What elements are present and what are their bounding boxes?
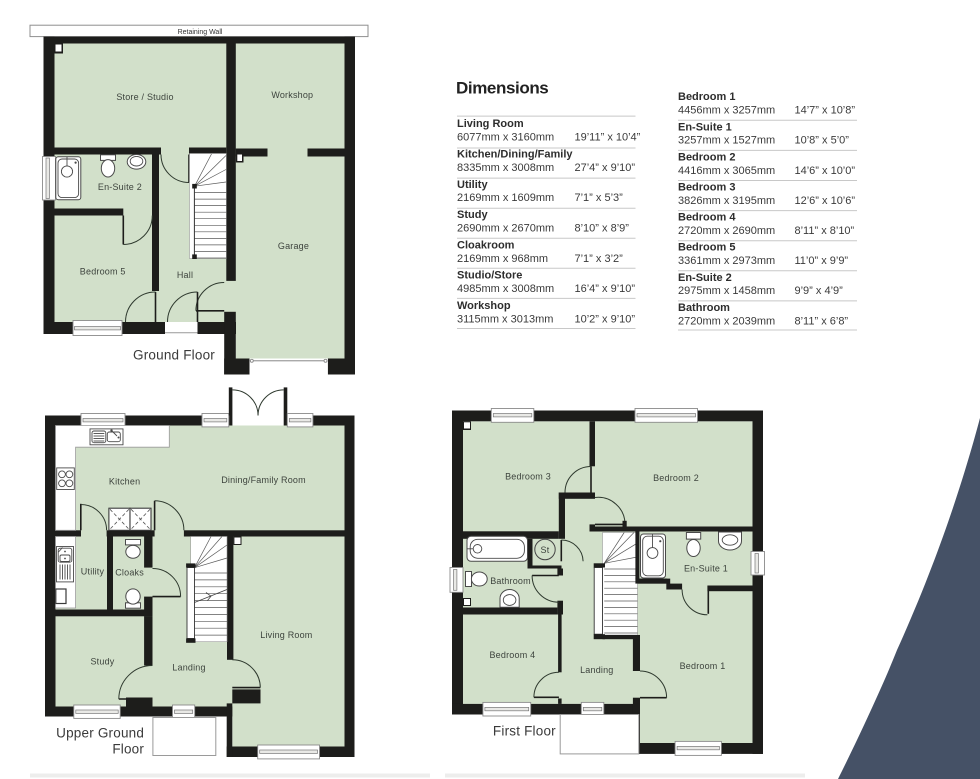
svg-text:4456mm x 3257mm: 4456mm x 3257mm [678, 105, 775, 117]
svg-text:4985mm x 3008mm: 4985mm x 3008mm [457, 283, 554, 295]
svg-text:Bathroom: Bathroom [678, 302, 730, 314]
svg-text:Bedroom 5: Bedroom 5 [678, 242, 735, 254]
svg-text:7’1” x 5’3”: 7’1” x 5’3” [575, 192, 624, 204]
svg-text:Landing: Landing [172, 663, 205, 673]
svg-text:14’7” x 10’8”: 14’7” x 10’8” [795, 105, 856, 117]
svg-text:Hall: Hall [177, 270, 193, 280]
svg-text:En-Suite 1: En-Suite 1 [678, 121, 732, 133]
svg-text:Bedroom 4: Bedroom 4 [678, 212, 736, 224]
svg-text:Dimensions: Dimensions [456, 79, 548, 98]
svg-text:First Floor: First Floor [493, 724, 556, 739]
svg-text:Garage: Garage [278, 241, 309, 251]
svg-text:Dining/Family Room: Dining/Family Room [221, 475, 306, 485]
svg-text:Bedroom 3: Bedroom 3 [505, 472, 551, 482]
svg-text:2690mm x 2670mm: 2690mm x 2670mm [457, 223, 554, 235]
svg-text:4416mm x 3065mm: 4416mm x 3065mm [678, 165, 775, 177]
svg-text:Cloaks: Cloaks [115, 568, 144, 578]
svg-text:Ground Floor: Ground Floor [133, 348, 215, 363]
svg-text:27’4” x 9’10”: 27’4” x 9’10” [575, 162, 636, 174]
svg-text:Bedroom 1: Bedroom 1 [680, 661, 726, 671]
svg-text:6077mm x 3160mm: 6077mm x 3160mm [457, 132, 554, 144]
svg-text:8335mm x 3008mm: 8335mm x 3008mm [457, 162, 554, 174]
svg-text:2169mm x 968mm: 2169mm x 968mm [457, 253, 548, 265]
svg-text:Bedroom 1: Bedroom 1 [678, 91, 735, 103]
svg-text:10’2” x 9’10”: 10’2” x 9’10” [575, 313, 636, 325]
svg-text:Bedroom 2: Bedroom 2 [678, 151, 735, 163]
svg-text:Living Room: Living Room [457, 118, 524, 130]
svg-text:Study: Study [90, 657, 114, 667]
svg-text:7’1” x 3’2”: 7’1” x 3’2” [575, 253, 624, 265]
svg-text:En-Suite 2: En-Suite 2 [98, 182, 142, 192]
svg-text:Kitchen: Kitchen [109, 477, 140, 487]
svg-text:10’8” x 5’0”: 10’8” x 5’0” [795, 135, 850, 147]
svg-text:Study: Study [457, 209, 488, 221]
svg-text:Retaining Wall: Retaining Wall [178, 29, 223, 36]
svg-text:Upper Ground: Upper Ground [56, 726, 144, 741]
svg-text:14’6” x 10’0”: 14’6” x 10’0” [795, 165, 856, 177]
svg-text:Landing: Landing [580, 665, 613, 675]
svg-text:8’11” x 6’8”: 8’11” x 6’8” [795, 315, 849, 327]
svg-text:Floor: Floor [112, 742, 144, 757]
svg-text:Store / Studio: Store / Studio [116, 92, 173, 102]
svg-text:Bedroom 2: Bedroom 2 [653, 473, 699, 483]
svg-text:9’9” x 4’9”: 9’9” x 4’9” [795, 285, 844, 297]
svg-text:Bedroom 4: Bedroom 4 [489, 650, 535, 660]
svg-text:Utility: Utility [457, 179, 488, 191]
svg-text:Living Room: Living Room [260, 630, 312, 640]
svg-text:11’0” x 9’9”: 11’0” x 9’9” [795, 255, 849, 267]
svg-text:Workshop: Workshop [271, 90, 313, 100]
svg-text:St: St [541, 545, 550, 555]
svg-text:Studio/Store: Studio/Store [457, 270, 522, 282]
svg-text:2720mm x 2690mm: 2720mm x 2690mm [678, 225, 775, 237]
svg-text:3826mm x 3195mm: 3826mm x 3195mm [678, 195, 775, 207]
svg-text:8’10” x 8’9”: 8’10” x 8’9” [575, 223, 630, 235]
svg-text:Bedroom 3: Bedroom 3 [678, 182, 735, 194]
svg-text:2720mm x 2039mm: 2720mm x 2039mm [678, 315, 775, 327]
svg-text:Bedroom 5: Bedroom 5 [80, 267, 126, 277]
svg-text:En-Suite 2: En-Suite 2 [678, 272, 732, 284]
svg-text:3257mm x 1527mm: 3257mm x 1527mm [678, 135, 775, 147]
svg-text:12’6” x 10’6”: 12’6” x 10’6” [795, 195, 856, 207]
svg-text:2169mm x 1609mm: 2169mm x 1609mm [457, 192, 554, 204]
svg-text:3115mm x 3013mm: 3115mm x 3013mm [457, 313, 553, 325]
svg-text:Bathroom: Bathroom [490, 576, 531, 586]
svg-text:16’4” x 9’10”: 16’4” x 9’10” [575, 283, 636, 295]
svg-text:8’11” x 8’10”: 8’11” x 8’10” [795, 225, 855, 237]
svg-text:Utility: Utility [81, 567, 105, 577]
svg-text:Cloakroom: Cloakroom [457, 239, 515, 251]
svg-text:En-Suite 1: En-Suite 1 [684, 564, 728, 574]
svg-text:2975mm x 1458mm: 2975mm x 1458mm [678, 285, 775, 297]
svg-text:Kitchen/Dining/Family: Kitchen/Dining/Family [457, 149, 573, 161]
svg-text:3361mm x 2973mm: 3361mm x 2973mm [678, 255, 775, 267]
svg-text:Workshop: Workshop [457, 300, 511, 312]
svg-text:19’11” x 10’4”: 19’11” x 10’4” [575, 132, 641, 144]
